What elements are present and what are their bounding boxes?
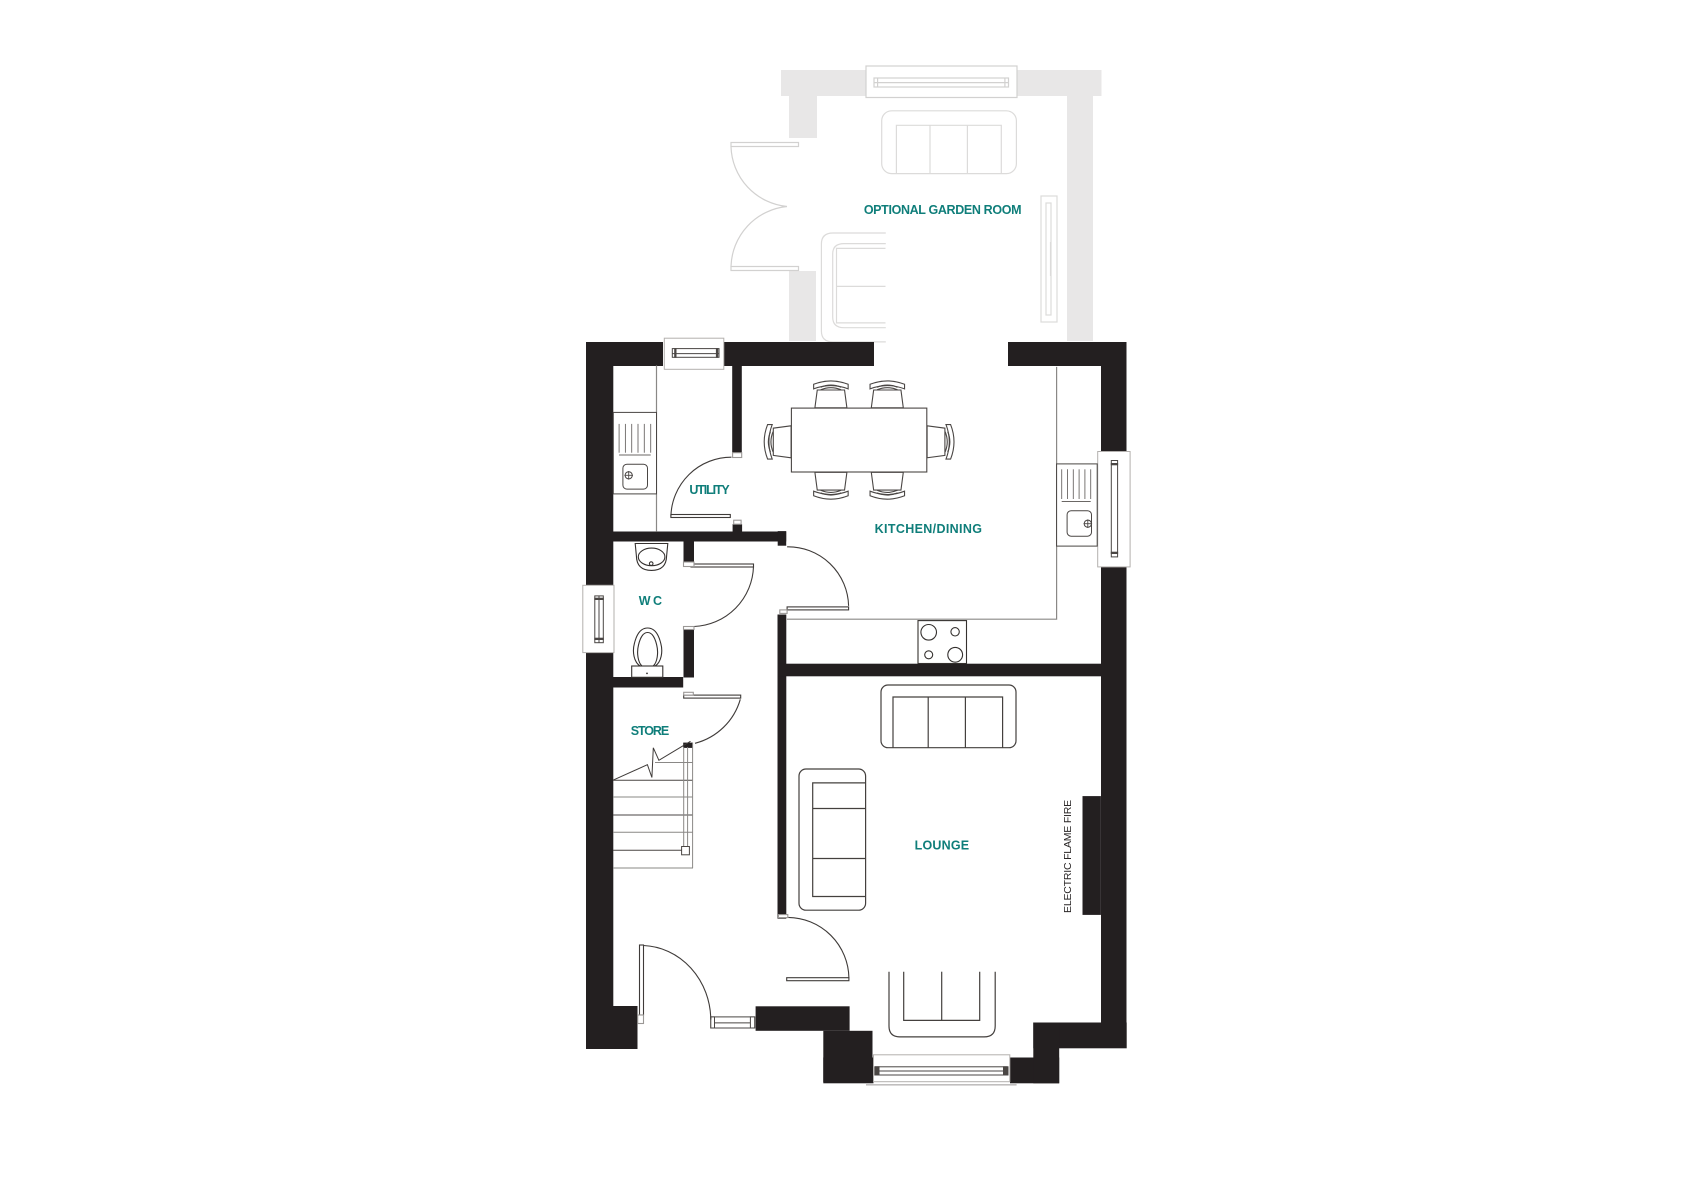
svg-text:WC: WC [639, 594, 665, 608]
svg-text:ELECTRIC FLAME FIRE: ELECTRIC FLAME FIRE [1062, 800, 1074, 913]
svg-text:OPTIONAL GARDEN ROOM: OPTIONAL GARDEN ROOM [864, 203, 1021, 217]
svg-text:STORE: STORE [631, 724, 669, 738]
svg-text:KITCHEN/DINING: KITCHEN/DINING [875, 522, 983, 536]
svg-text:UTILITY: UTILITY [689, 483, 730, 497]
svg-text:LOUNGE: LOUNGE [915, 838, 970, 852]
